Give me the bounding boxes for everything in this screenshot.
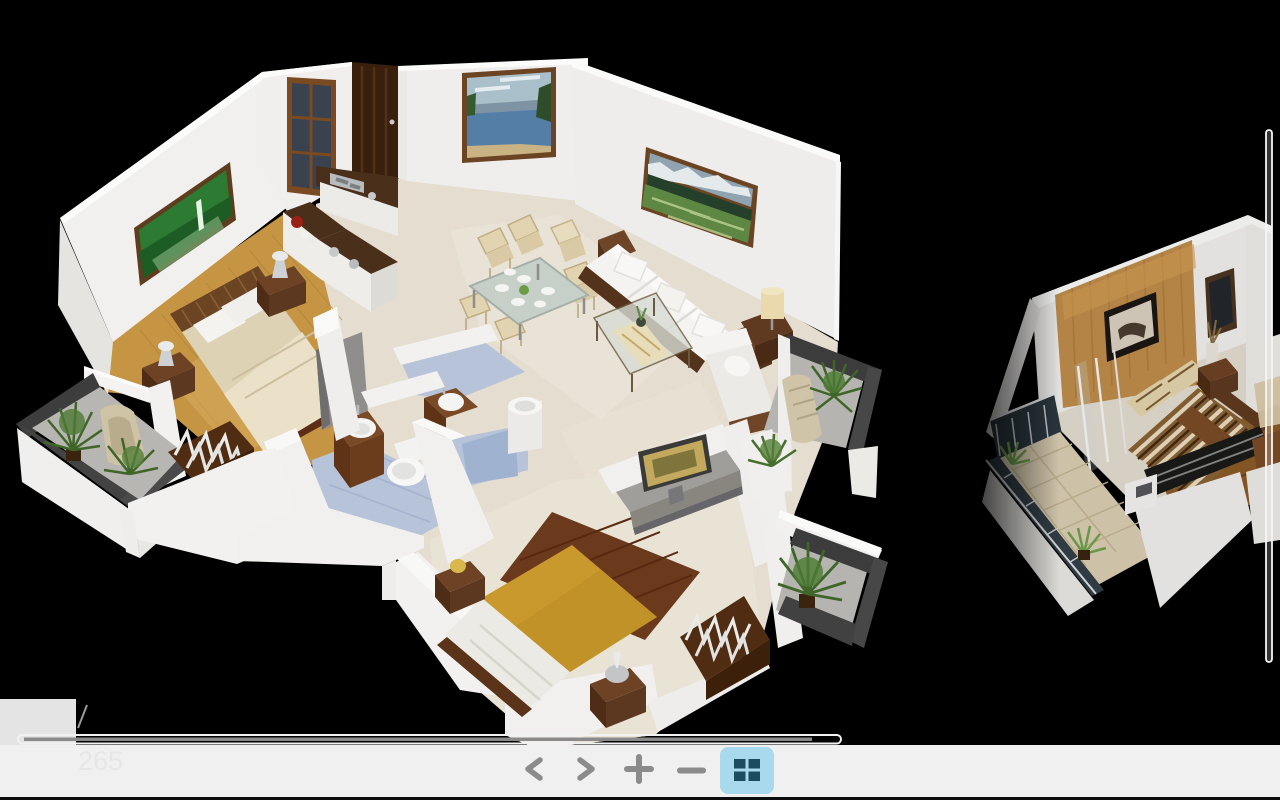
svg-text:265: 265 (78, 746, 123, 776)
